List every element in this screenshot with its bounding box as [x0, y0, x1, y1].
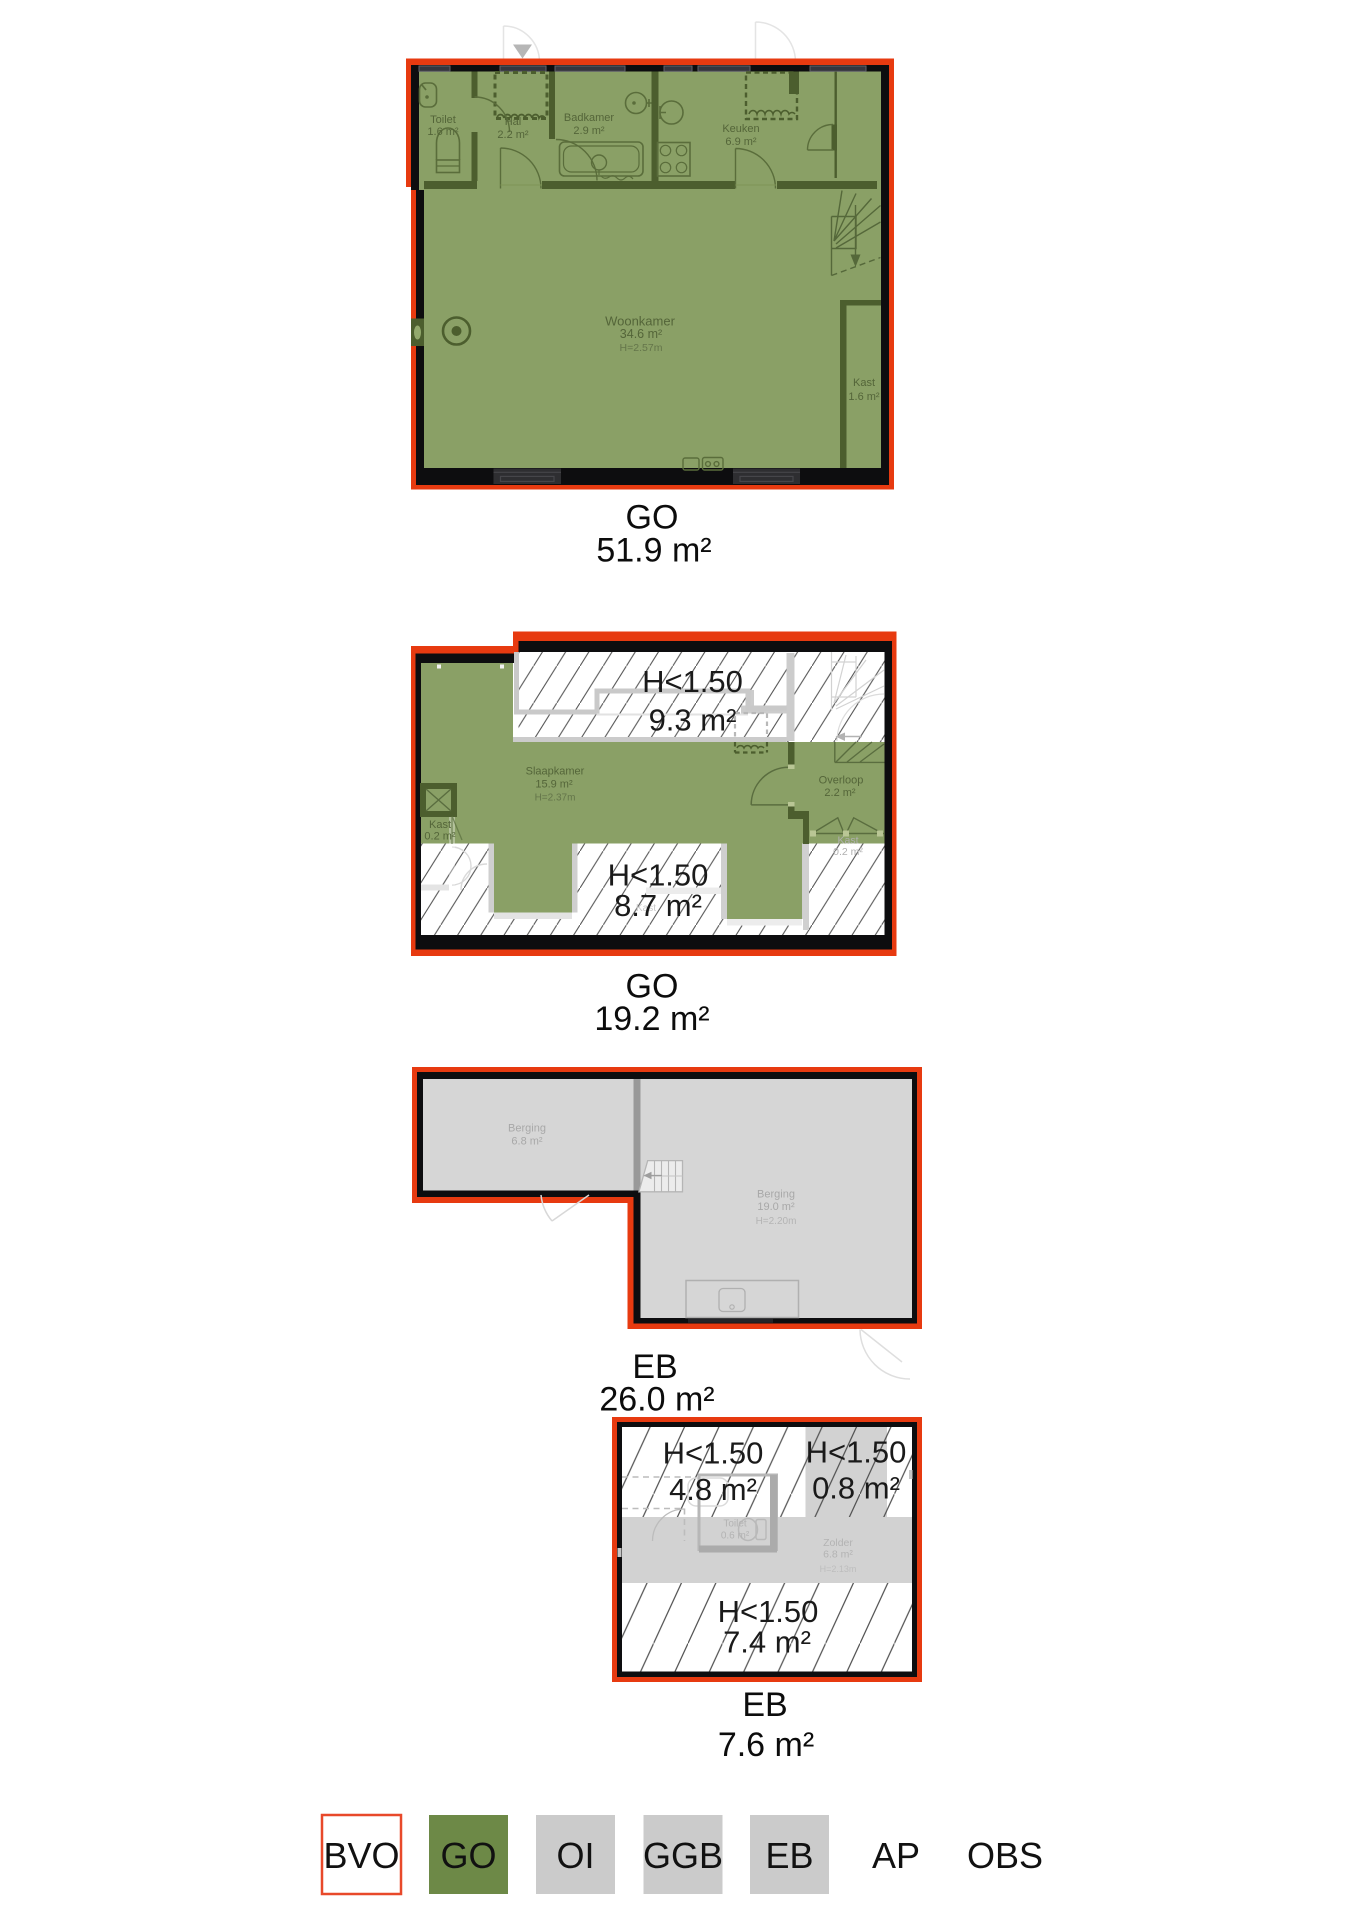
svg-text:Badkamer: Badkamer	[564, 112, 614, 124]
svg-text:EB: EB	[765, 1835, 813, 1876]
svg-text:0.8 m²: 0.8 m²	[812, 1470, 900, 1505]
svg-text:H<1.50: H<1.50	[642, 664, 743, 699]
svg-text:AP: AP	[872, 1835, 920, 1876]
svg-text:26.0 m²: 26.0 m²	[599, 1380, 714, 1418]
svg-text:15.9 m²: 15.9 m²	[535, 778, 573, 790]
svg-text:H<1.50: H<1.50	[806, 1434, 907, 1469]
svg-text:Slaapkamer: Slaapkamer	[526, 765, 585, 777]
svg-text:Toilet: Toilet	[430, 114, 456, 126]
svg-text:Berging: Berging	[757, 1188, 795, 1200]
svg-text:Berging: Berging	[508, 1122, 546, 1134]
svg-text:Overloop: Overloop	[819, 774, 864, 786]
svg-text:4.8 m²: 4.8 m²	[669, 1472, 757, 1507]
svg-text:34.6 m²: 34.6 m²	[620, 327, 662, 341]
svg-text:H<1.50: H<1.50	[663, 1435, 764, 1470]
svg-text:19.0 m²: 19.0 m²	[757, 1201, 795, 1213]
svg-text:OI: OI	[556, 1835, 594, 1876]
svg-text:6.9 m²: 6.9 m²	[725, 136, 757, 148]
svg-text:0.6 m²: 0.6 m²	[721, 1531, 750, 1542]
svg-text:Hal: Hal	[505, 116, 522, 128]
svg-text:7.4 m²: 7.4 m²	[723, 1624, 811, 1659]
svg-text:1.6 m²: 1.6 m²	[427, 126, 459, 138]
svg-text:GGB: GGB	[643, 1835, 723, 1876]
svg-text:6.8 m²: 6.8 m²	[823, 1549, 853, 1561]
svg-text:H=2.13m: H=2.13m	[820, 1564, 857, 1574]
svg-text:Zolder: Zolder	[823, 1537, 853, 1549]
svg-text:0.2 m²: 0.2 m²	[833, 846, 863, 858]
svg-text:H=2.57m: H=2.57m	[620, 342, 663, 354]
svg-text:2.2 m²: 2.2 m²	[824, 787, 856, 799]
svg-text:51.9 m²: 51.9 m²	[596, 531, 711, 569]
svg-text:8.7 m²: 8.7 m²	[614, 888, 702, 923]
svg-text:0.2 m²: 0.2 m²	[424, 830, 456, 842]
svg-text:7.6 m²: 7.6 m²	[718, 1726, 814, 1764]
svg-text:2.2 m²: 2.2 m²	[497, 129, 529, 141]
svg-text:GO: GO	[440, 1835, 496, 1876]
svg-text:H=2.20m: H=2.20m	[756, 1216, 797, 1227]
svg-text:Kast: Kast	[837, 835, 858, 847]
svg-text:EB: EB	[742, 1686, 787, 1724]
svg-text:6.8 m²: 6.8 m²	[511, 1135, 543, 1147]
svg-text:Toilet: Toilet	[723, 1519, 747, 1530]
svg-text:1.6 m²: 1.6 m²	[848, 391, 880, 403]
svg-text:19.2 m²: 19.2 m²	[594, 1000, 709, 1038]
svg-text:Kast: Kast	[853, 377, 875, 389]
svg-text:BVO: BVO	[323, 1835, 399, 1876]
svg-text:Kast: Kast	[429, 819, 451, 831]
svg-text:9.3 m²: 9.3 m²	[649, 703, 737, 738]
svg-text:Keuken: Keuken	[722, 123, 759, 135]
svg-text:2.9 m²: 2.9 m²	[573, 125, 605, 137]
svg-text:H=2.37m: H=2.37m	[535, 793, 576, 804]
svg-text:OBS: OBS	[967, 1835, 1043, 1876]
